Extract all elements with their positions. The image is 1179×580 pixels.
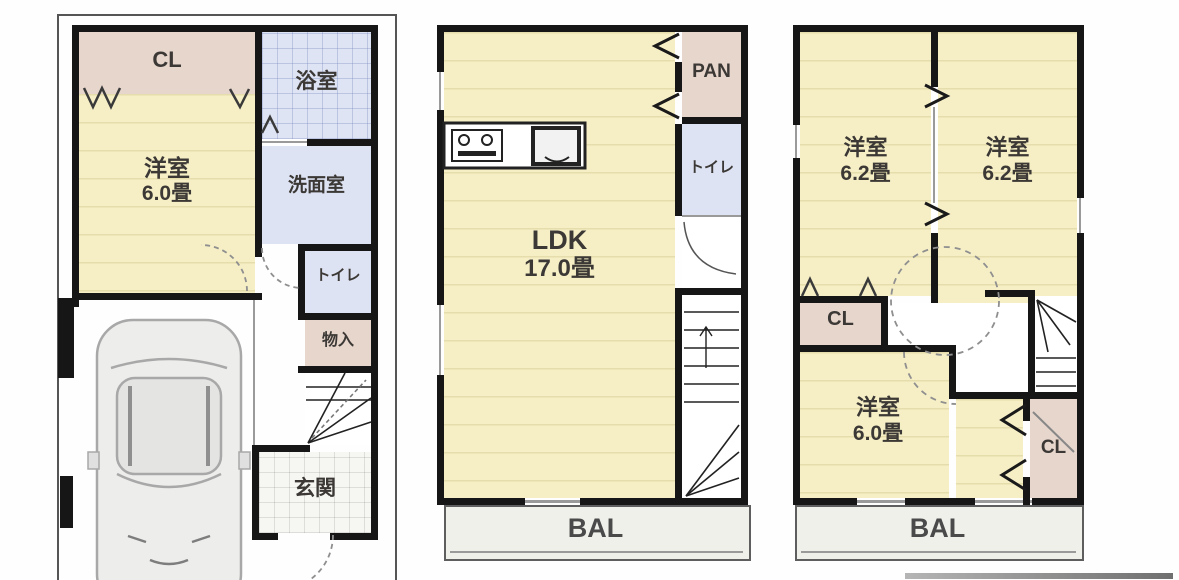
- garage-wall-stub: [60, 476, 73, 528]
- label-entrance-1f: 玄関: [259, 477, 371, 500]
- wall: [437, 25, 444, 72]
- window: [439, 72, 441, 110]
- door-opening: [262, 141, 307, 143]
- wall: [371, 25, 378, 540]
- label-bedroom-1f: 洋室: [79, 156, 255, 181]
- door-opening: [682, 215, 741, 217]
- label-ldk-2f: LDK: [444, 226, 675, 256]
- label-closet-a-3f: CL: [800, 308, 881, 330]
- window: [525, 500, 580, 503]
- window: [857, 500, 905, 503]
- wall: [1077, 25, 1084, 198]
- wall: [675, 62, 682, 92]
- wall: [682, 117, 741, 124]
- wall: [793, 25, 800, 125]
- label-pantry-2f: PAN: [682, 62, 741, 83]
- room-stairs-2f: [682, 295, 741, 498]
- wall: [1032, 498, 1084, 505]
- wall: [437, 375, 444, 505]
- label-balcony-2f: BAL: [444, 514, 747, 544]
- wall: [255, 25, 262, 257]
- wall: [298, 244, 371, 251]
- floorplan-image: CL 洋室 6.0畳 浴室 洗面室 トイレ 物入 玄関 LDK 17.0畳 PA…: [0, 0, 1179, 580]
- wall: [437, 25, 748, 32]
- wall: [793, 498, 857, 505]
- corridor-line: [253, 300, 255, 445]
- wall: [298, 366, 371, 373]
- label-bedroom-b-3f: 洋室: [938, 136, 1077, 160]
- balcony-edge-line: [450, 551, 743, 553]
- label-closet-1f: CL: [79, 48, 255, 72]
- wall: [675, 288, 748, 295]
- wall: [298, 313, 371, 320]
- label-ldk-2f-size: 17.0畳: [444, 256, 675, 282]
- room-stairs-3f: [1035, 296, 1077, 392]
- wall: [580, 498, 748, 505]
- window: [795, 125, 797, 158]
- cropped-edge-artifact: [905, 573, 1173, 579]
- partition-line: [933, 107, 935, 203]
- label-bath-1f: 浴室: [262, 70, 371, 93]
- room-landing-2f: [682, 217, 741, 288]
- wall: [793, 296, 888, 303]
- window: [1079, 198, 1081, 233]
- wall: [1028, 296, 1035, 399]
- wall: [307, 139, 371, 146]
- window: [439, 305, 441, 375]
- label-toilet-1f: トイレ: [305, 268, 371, 285]
- wall: [1023, 399, 1030, 421]
- wall: [931, 25, 938, 87]
- room-bedroom-c-3f: [956, 399, 1023, 498]
- label-bedroom-a-3f: 洋室: [800, 136, 931, 160]
- wall: [949, 392, 1084, 399]
- wall: [252, 445, 259, 540]
- label-toilet-2f: トイレ: [682, 160, 741, 177]
- wall: [905, 498, 975, 505]
- label-balcony-3f: BAL: [795, 514, 1080, 544]
- label-bedroom-c-3f: 洋室: [800, 396, 956, 420]
- wall: [793, 158, 800, 505]
- wall: [931, 233, 938, 303]
- label-storage-1f: 物入: [305, 332, 371, 350]
- room-stairs-1f: [305, 373, 371, 445]
- wall: [72, 25, 79, 307]
- wall: [1023, 477, 1030, 505]
- wall: [330, 533, 378, 540]
- label-bedroom-1f-size: 6.0畳: [79, 182, 255, 205]
- balcony-edge-line: [801, 551, 1076, 553]
- label-closet-b-3f: CL: [1030, 438, 1077, 459]
- wall: [252, 533, 278, 540]
- wall: [888, 345, 956, 352]
- wall: [72, 293, 262, 300]
- wall: [741, 25, 748, 505]
- label-bedroom-a-3f-size: 6.2畳: [800, 162, 931, 185]
- wall: [437, 110, 444, 305]
- wall: [675, 124, 682, 216]
- wall: [298, 244, 305, 320]
- wall: [1077, 233, 1084, 505]
- wall: [793, 25, 1084, 32]
- wall: [252, 445, 310, 452]
- wall: [949, 345, 956, 399]
- wall: [881, 296, 888, 352]
- label-bedroom-b-3f-size: 6.2畳: [938, 162, 1077, 185]
- wall: [793, 345, 888, 352]
- garage-wall-stub: [58, 298, 74, 378]
- label-washroom-1f: 洗面室: [262, 176, 371, 197]
- wall: [72, 25, 378, 32]
- wall: [437, 498, 525, 505]
- wall: [675, 295, 682, 505]
- label-bedroom-c-3f-size: 6.0畳: [800, 422, 956, 445]
